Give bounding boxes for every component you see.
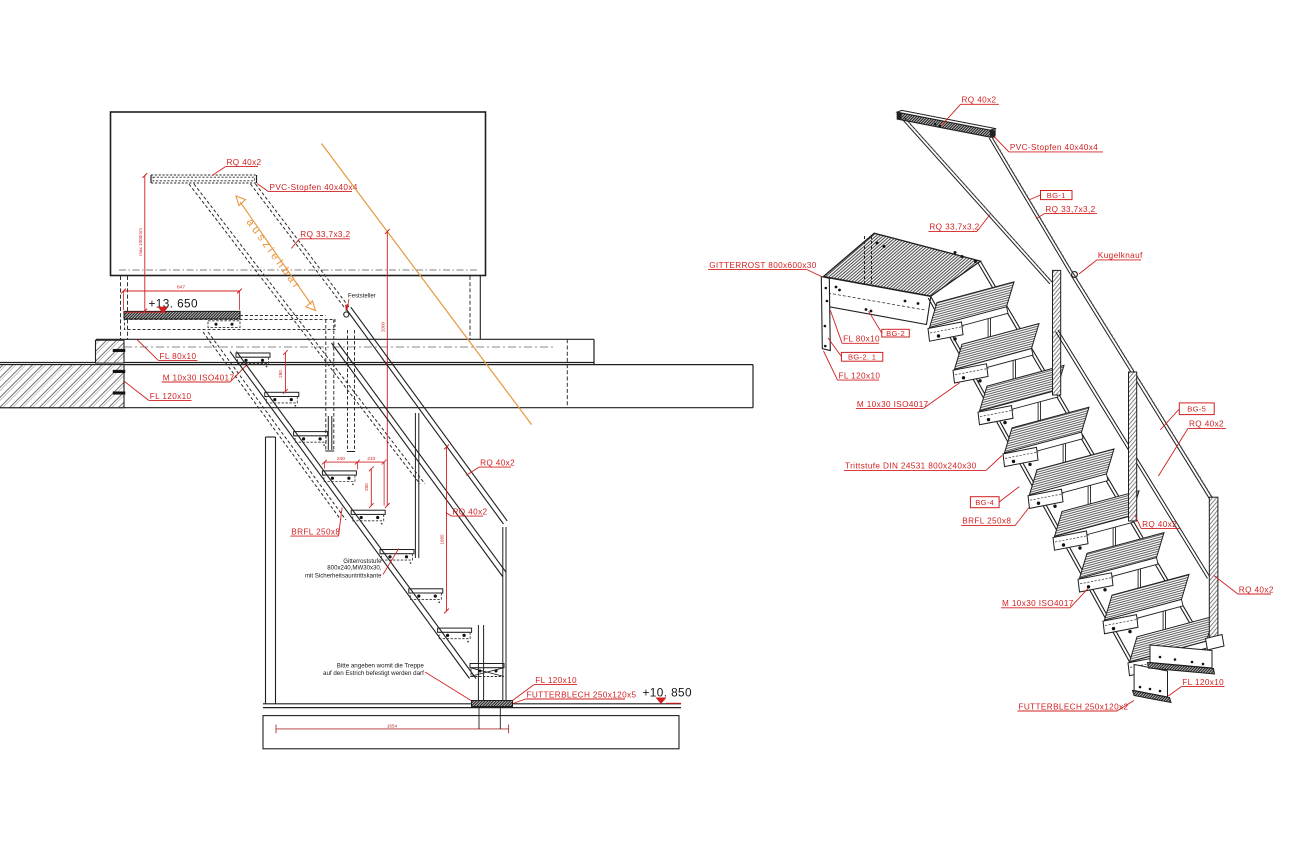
svg-text:RQ 40x2: RQ 40x2 xyxy=(227,158,262,167)
svg-text:280: 280 xyxy=(364,483,369,491)
svg-text:BG-5: BG-5 xyxy=(1187,405,1206,414)
svg-text:GITTERROST 800x600x30: GITTERROST 800x600x30 xyxy=(709,261,817,270)
svg-text:RQ 40x2: RQ 40x2 xyxy=(1142,520,1177,529)
svg-text:RQ 40x2: RQ 40x2 xyxy=(962,96,997,105)
svg-text:RQ 40x2: RQ 40x2 xyxy=(1189,420,1224,429)
svg-text:BRFL 250x8: BRFL 250x8 xyxy=(291,527,340,536)
svg-text:BRFL 250x8: BRFL 250x8 xyxy=(962,516,1011,525)
svg-text:FL 120x10: FL 120x10 xyxy=(1182,678,1224,687)
svg-text:RQ 33,7x3,2: RQ 33,7x3,2 xyxy=(929,223,979,232)
svg-text:FL 80x10: FL 80x10 xyxy=(843,335,880,344)
svg-text:M 10x30 ISO4017: M 10x30 ISO4017 xyxy=(1002,599,1074,608)
svg-text:max 1000mm: max 1000mm xyxy=(138,228,143,256)
svg-text:BG-4: BG-4 xyxy=(975,498,994,507)
svg-text:800x240,MW30x30,: 800x240,MW30x30, xyxy=(327,564,382,571)
svg-text:M 10x30 ISO4017: M 10x30 ISO4017 xyxy=(163,373,235,382)
svg-text:FUTTERBLECH 250x120x2: FUTTERBLECH 250x120x2 xyxy=(1019,702,1129,711)
svg-text:+10. 850: +10. 850 xyxy=(643,686,692,700)
svg-text:RQ 40x2: RQ 40x2 xyxy=(480,459,515,468)
svg-text:1654: 1654 xyxy=(387,723,398,728)
svg-text:FL 80x10: FL 80x10 xyxy=(160,352,197,361)
svg-text:FUTTERBLECH 250x120x5: FUTTERBLECH 250x120x5 xyxy=(527,690,637,699)
svg-text:240: 240 xyxy=(337,456,345,462)
svg-text:BG-2: BG-2 xyxy=(886,329,905,338)
svg-text:BG-2. 1: BG-2. 1 xyxy=(848,353,876,362)
svg-text:RQ 40x2: RQ 40x2 xyxy=(453,508,488,517)
svg-text:RQ 40x2: RQ 40x2 xyxy=(1239,585,1274,594)
svg-text:FL 120x10: FL 120x10 xyxy=(535,676,577,685)
svg-text:210: 210 xyxy=(367,456,375,462)
svg-text:1065: 1065 xyxy=(440,534,445,545)
svg-text:PVC-Stopfen 40x40x4: PVC-Stopfen 40x40x4 xyxy=(270,183,358,192)
svg-text:280: 280 xyxy=(278,370,283,378)
svg-text:Bitte angeben womit die Treppe: Bitte angeben womit die Treppe xyxy=(337,663,425,670)
svg-text:mit Sicherheitsauntrittskante: mit Sicherheitsauntrittskante xyxy=(305,572,382,579)
svg-text:Kugelknauf: Kugelknauf xyxy=(1098,251,1143,260)
svg-text:PVC-Stopfen 40x40x4: PVC-Stopfen 40x40x4 xyxy=(1010,143,1098,152)
svg-text:FL 120x10: FL 120x10 xyxy=(150,392,192,401)
svg-text:auf den Estrich befestigt werd: auf den Estrich befestigt werden darf xyxy=(323,670,424,677)
svg-text:847: 847 xyxy=(177,285,185,291)
svg-text:FL 120x10: FL 120x10 xyxy=(839,371,881,380)
svg-text:2000: 2000 xyxy=(381,321,386,332)
svg-text:RQ 33,7x3,2: RQ 33,7x3,2 xyxy=(1045,205,1095,214)
svg-text:+13. 650: +13. 650 xyxy=(149,297,198,311)
svg-text:M 10x30 ISO4017: M 10x30 ISO4017 xyxy=(857,400,929,409)
svg-text:Trittstufe DIN 24531 800x240x: Trittstufe DIN 24531 800x240x30 xyxy=(845,462,977,471)
svg-text:Feststeller: Feststeller xyxy=(348,294,376,300)
svg-text:RQ 33,7x3,2: RQ 33,7x3,2 xyxy=(300,230,350,239)
svg-text:BG-1: BG-1 xyxy=(1047,191,1066,200)
